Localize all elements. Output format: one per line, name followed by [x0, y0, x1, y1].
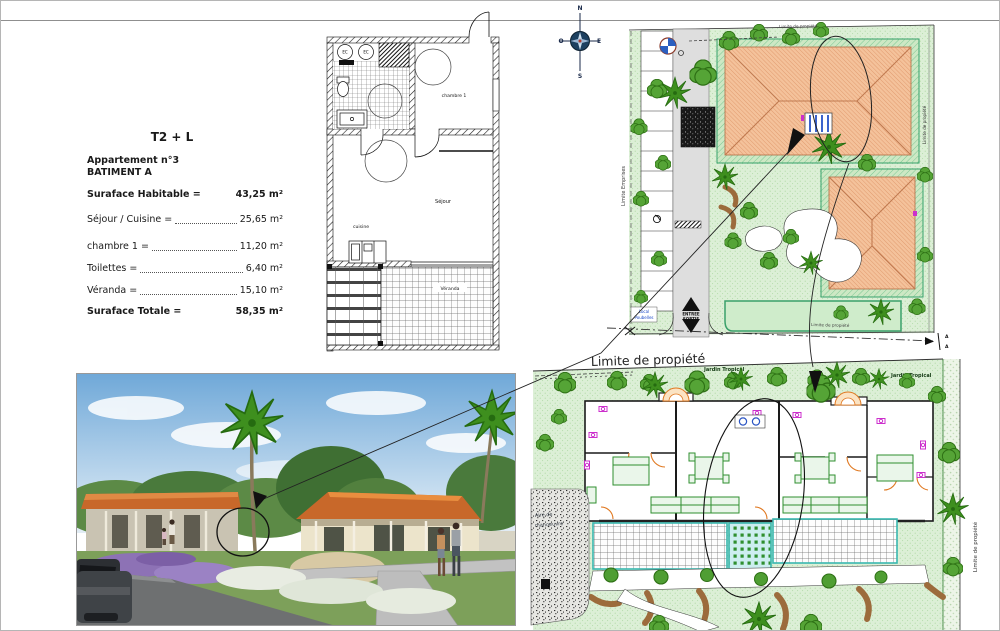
terrace-grid [593, 523, 727, 569]
parking-strip [641, 31, 673, 311]
bathroom: EC EC [333, 43, 409, 155]
surface-label: Toilettes = [87, 263, 137, 275]
surface-value: 6,40 m² [246, 263, 283, 275]
apartment-type-title: T2 + L [87, 131, 257, 143]
building-a-roofplan [717, 39, 919, 163]
living-room: Séjour [365, 140, 452, 205]
pool [729, 523, 771, 569]
fixture-mark [913, 211, 917, 216]
toilet-icon [337, 77, 349, 97]
ec-label: EC [342, 50, 348, 55]
boundary-label-right: Limite de propiété [972, 521, 979, 572]
utility-square [681, 107, 715, 147]
surface-value: 15,10 m² [240, 285, 283, 297]
fan-circle [365, 140, 407, 182]
compass-west: O [558, 38, 563, 45]
surface-label: Véranda = [87, 285, 137, 297]
surface-value: 25,65 m² [240, 214, 283, 226]
bedroom-label: chambre 1 [442, 93, 467, 99]
bedroom-room: chambre 1 [415, 49, 499, 157]
kitchen-counter [349, 241, 386, 263]
pond [745, 226, 782, 251]
kitchen-label: cuisine [353, 224, 369, 230]
axis-cross-icon [625, 327, 635, 335]
person [169, 519, 175, 544]
surface-label: Séjour / Cuisine = [87, 214, 172, 226]
surface-value: 43,25 m² [236, 189, 283, 201]
svg-text:Local: Local [639, 309, 649, 314]
surface-value: 11,20 m² [240, 241, 283, 253]
surface-info-panel: T2 + L Appartement n°3 BATIMENT A Surafa… [87, 131, 287, 318]
veranda-grid [381, 267, 493, 345]
boundary-label-small: Limite de propiété [811, 322, 850, 328]
boundary-label-left: Limite Emprises [621, 156, 627, 216]
garden-label: Jardin Tropical [703, 367, 745, 373]
surface-row: Suraface Habitable = 43,25 m² [87, 189, 283, 201]
window-icon [493, 79, 499, 111]
section-marker: A [945, 334, 949, 340]
surface-value: 58,35 m² [236, 306, 283, 318]
road-marker [541, 579, 550, 589]
crosswalk [675, 221, 701, 228]
boundary-label-right: Limite de propiété [922, 105, 927, 144]
surface-row: Suraface Totale = 58,35 m² [87, 306, 283, 318]
shower-icon [337, 110, 367, 128]
surface-label: chambre 1 = [87, 241, 149, 253]
compass-north: N [577, 5, 582, 12]
building-name: BATIMENT A [87, 167, 287, 179]
site-plan: ENTREE SORTIE Local Poubelles Limite de … [629, 15, 939, 349]
road-axis-line [607, 328, 933, 341]
veranda-label: Véranda [441, 285, 460, 292]
leader-dots [175, 223, 236, 224]
window-detail [801, 113, 832, 134]
compass-east: E [597, 38, 601, 45]
apartment-floor-plan: EC EC chambre 1 Sé [321, 5, 503, 355]
closet-hatch [379, 43, 409, 67]
compass-rose: N S E O [557, 1, 603, 79]
leader-dots [140, 272, 242, 273]
pergola-grid [327, 267, 381, 345]
surface-label: Suraface Totale = [87, 306, 181, 318]
ec-label: EC [363, 50, 369, 55]
fan-circle [415, 49, 451, 85]
duplex-detail-plan: Jardin Tropical Jardin Tropical [529, 357, 991, 631]
axis-arrow-icon [925, 337, 934, 345]
compass-south: S [578, 73, 582, 79]
surface-row: Véranda = 15,10 m² [87, 285, 283, 297]
exterior-rendering [76, 373, 516, 626]
surface-row: Toilettes = 6,40 m² [87, 263, 283, 275]
entry-door [469, 12, 489, 37]
terrace-grid [773, 519, 897, 563]
leader-dots [152, 250, 237, 251]
architectural-sheet: T2 + L Appartement n°3 BATIMENT A Surafa… [0, 0, 1000, 631]
surface-row: Séjour / Cuisine = 25,65 m² [87, 214, 283, 226]
bay-window [411, 262, 493, 265]
kitchen: cuisine [349, 224, 386, 263]
basin-pair [735, 415, 765, 428]
surface-label: Suraface Habitable = [87, 189, 201, 201]
access-road: Aire de manoeuvre [531, 489, 589, 625]
section-marker: A [945, 344, 949, 350]
surface-row: chambre 1 = 11,20 m² [87, 241, 283, 253]
apartment-number: Appartement n°3 [87, 155, 287, 167]
duplex-building [585, 388, 934, 521]
boundary-label-top: Limite de propiété [779, 23, 818, 29]
road-label: Aire de [535, 512, 553, 519]
person [162, 528, 167, 545]
leader-dots [140, 294, 237, 295]
bedroom-door [415, 135, 439, 157]
living-label: Séjour [435, 198, 452, 205]
house-left [81, 492, 241, 551]
